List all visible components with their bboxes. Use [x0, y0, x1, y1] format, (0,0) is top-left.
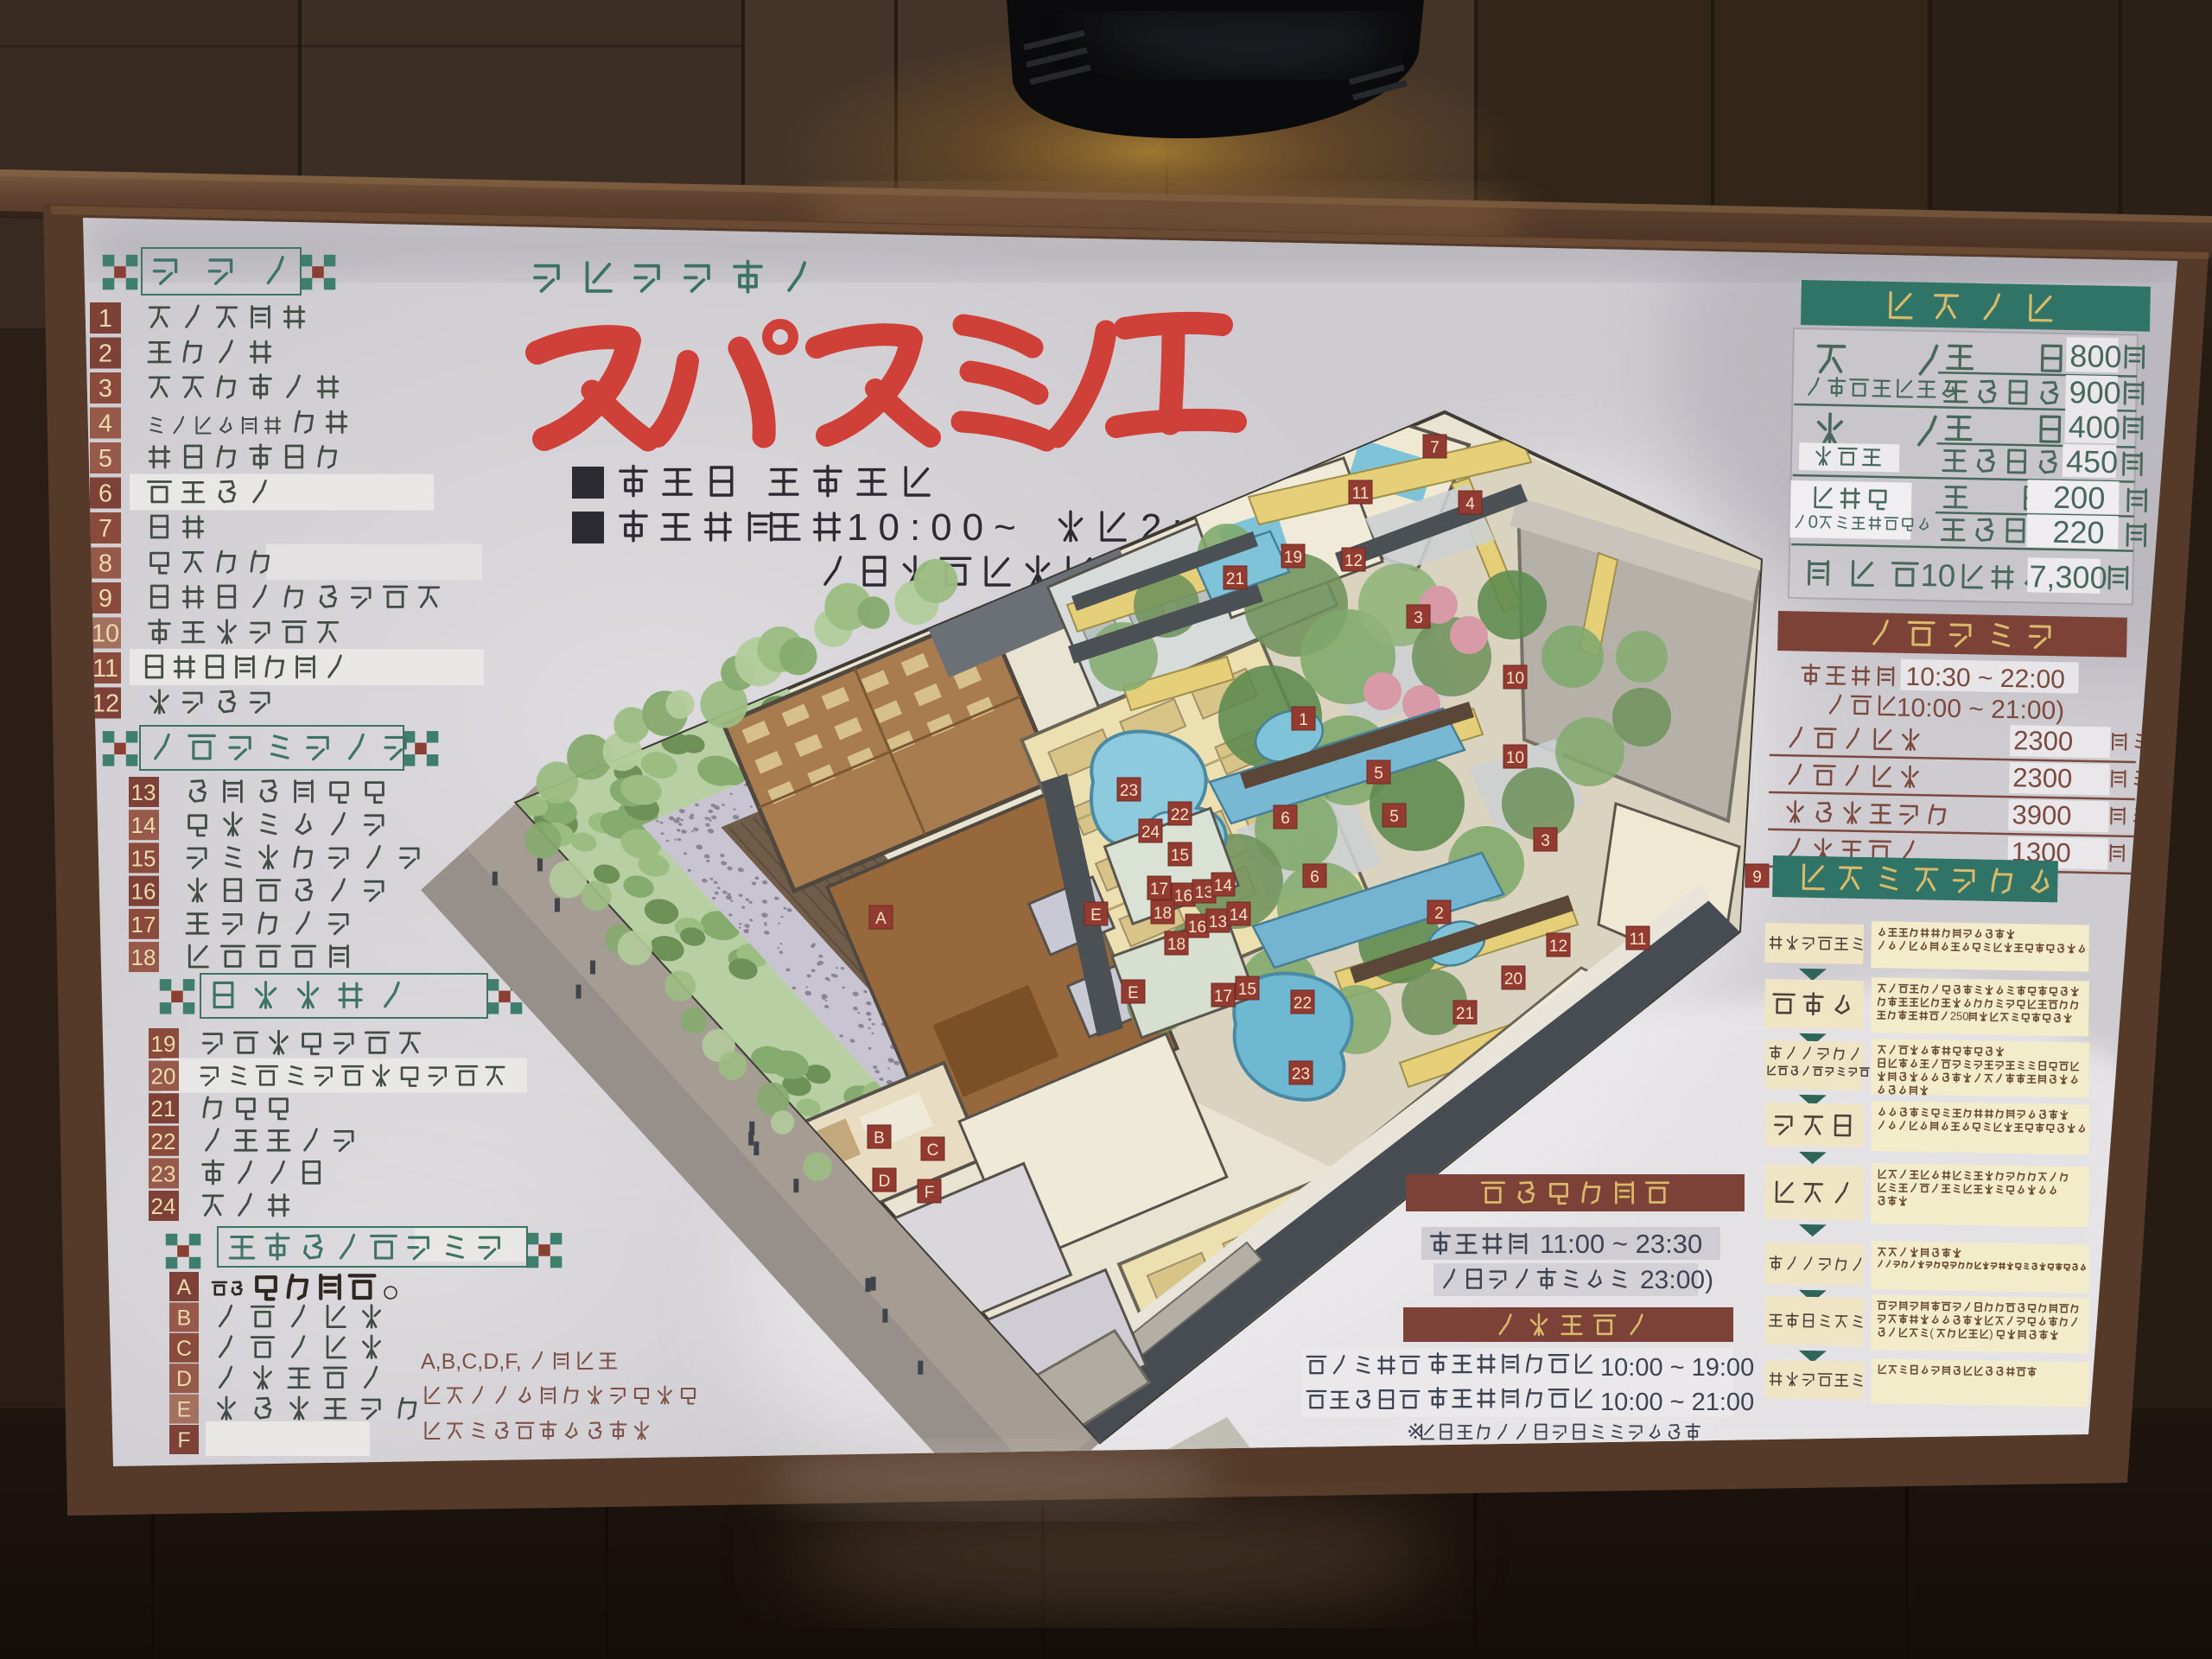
svg-text:1: 1: [1299, 711, 1308, 729]
svg-text:10: 10: [1920, 557, 1956, 594]
svg-text:16: 16: [131, 879, 156, 905]
svg-text:11: 11: [1630, 931, 1647, 949]
svg-text:13: 13: [1209, 913, 1227, 931]
svg-text:12: 12: [1344, 552, 1363, 570]
svg-text:10:00 ~ 19:00: 10:00 ~ 19:00: [1600, 1354, 1754, 1382]
svg-text:B: B: [874, 1129, 885, 1147]
svg-text:22: 22: [1294, 995, 1312, 1013]
svg-text:E: E: [177, 1398, 192, 1422]
svg-text:E: E: [1128, 984, 1139, 1002]
svg-text:11:00 ~ 23:30: 11:00 ~ 23:30: [1540, 1229, 1702, 1259]
svg-text:16: 16: [1188, 918, 1206, 937]
svg-text:450: 450: [2066, 443, 2119, 480]
svg-text:23: 23: [1292, 1065, 1310, 1084]
svg-text:2300: 2300: [2012, 762, 2073, 793]
svg-text:A,B,C,D,F,: A,B,C,D,F,: [421, 1350, 522, 1374]
svg-text:D: D: [176, 1367, 192, 1391]
svg-text:19: 19: [1284, 549, 1302, 567]
svg-text:F: F: [925, 1184, 935, 1202]
svg-text:2: 2: [99, 340, 112, 368]
svg-text:12: 12: [92, 690, 119, 718]
svg-text:21: 21: [1456, 1005, 1474, 1023]
svg-text:20: 20: [151, 1064, 176, 1090]
svg-text:10: 10: [1506, 670, 1524, 688]
svg-text:17: 17: [1214, 988, 1232, 1006]
svg-text:4: 4: [1465, 495, 1475, 513]
svg-text:220: 220: [2052, 514, 2105, 550]
svg-text:A: A: [177, 1275, 192, 1300]
svg-text:7,300: 7,300: [2029, 558, 2107, 595]
svg-text:18: 18: [1154, 905, 1172, 923]
svg-text:9: 9: [1752, 868, 1762, 887]
svg-text:3: 3: [1414, 609, 1423, 627]
svg-text:): ): [1989, 1327, 1993, 1340]
svg-text:22: 22: [1171, 806, 1189, 824]
svg-text:10:00~: 10:00~: [847, 506, 1027, 549]
svg-text:3900: 3900: [2012, 799, 2072, 830]
svg-text:2300: 2300: [2013, 725, 2074, 756]
svg-text:6: 6: [1310, 868, 1319, 887]
svg-text:17: 17: [131, 912, 156, 938]
svg-text:D: D: [879, 1173, 891, 1191]
svg-text:200: 200: [2053, 480, 2106, 516]
svg-text:21: 21: [1226, 570, 1244, 588]
svg-text:12: 12: [1549, 938, 1567, 956]
svg-text:C: C: [927, 1141, 939, 1160]
svg-text:7: 7: [99, 515, 112, 543]
svg-text:400: 400: [2068, 409, 2120, 445]
svg-text:4: 4: [99, 410, 112, 438]
svg-text:14: 14: [131, 812, 156, 838]
svg-text:18: 18: [131, 944, 156, 970]
svg-text:23: 23: [151, 1160, 176, 1186]
svg-text:6: 6: [99, 480, 112, 508]
svg-text:19: 19: [151, 1031, 176, 1057]
svg-text:24: 24: [1141, 823, 1160, 842]
svg-text:8: 8: [99, 550, 112, 578]
svg-text:20: 20: [1504, 970, 1522, 988]
svg-text:3: 3: [99, 375, 112, 403]
svg-text:23:00): 23:00): [1640, 1266, 1713, 1294]
svg-text:9: 9: [99, 585, 112, 613]
svg-text:15: 15: [1171, 847, 1189, 865]
svg-text:2: 2: [1434, 905, 1444, 923]
svg-text:10: 10: [1506, 749, 1524, 767]
svg-text:15: 15: [131, 845, 156, 871]
svg-text:A: A: [875, 910, 887, 928]
svg-text:10:00 ~ 21:00): 10:00 ~ 21:00): [1897, 694, 2065, 726]
svg-text:E: E: [1090, 906, 1102, 925]
svg-text:17: 17: [1150, 880, 1168, 899]
svg-text:13: 13: [1195, 884, 1213, 902]
svg-text:3: 3: [1541, 832, 1550, 850]
svg-text:F: F: [177, 1428, 190, 1452]
svg-text:B: B: [177, 1306, 192, 1330]
svg-text:0: 0: [1808, 512, 1818, 532]
svg-text:10:30 ~ 22:00: 10:30 ~ 22:00: [1905, 663, 2065, 695]
svg-text:10:00 ~ 21:00: 10:00 ~ 21:00: [1600, 1389, 1754, 1416]
svg-text:7: 7: [1430, 439, 1440, 457]
svg-text:(: (: [1929, 1326, 1934, 1339]
svg-text:250: 250: [1950, 1009, 1969, 1022]
svg-text:10: 10: [92, 620, 119, 648]
svg-text:22: 22: [151, 1128, 176, 1154]
svg-text:21: 21: [151, 1096, 176, 1122]
svg-text:14: 14: [1230, 906, 1249, 925]
svg-text:11: 11: [1352, 485, 1370, 503]
svg-text:16: 16: [1174, 887, 1192, 906]
svg-text:900: 900: [2069, 374, 2121, 410]
svg-text:13: 13: [131, 779, 156, 805]
svg-text:18: 18: [1167, 936, 1185, 954]
svg-text:6: 6: [1281, 810, 1290, 828]
svg-text:800: 800: [2069, 338, 2122, 374]
svg-text:23: 23: [1120, 782, 1138, 800]
svg-text:5: 5: [1374, 765, 1383, 783]
svg-text:5: 5: [1389, 808, 1399, 826]
svg-text:14: 14: [1214, 877, 1233, 895]
svg-text:C: C: [176, 1337, 192, 1361]
svg-text:24: 24: [151, 1193, 176, 1219]
svg-text:15: 15: [1238, 981, 1256, 999]
svg-text:11: 11: [92, 655, 118, 683]
svg-text:5: 5: [99, 445, 112, 473]
svg-text:1: 1: [99, 305, 112, 333]
